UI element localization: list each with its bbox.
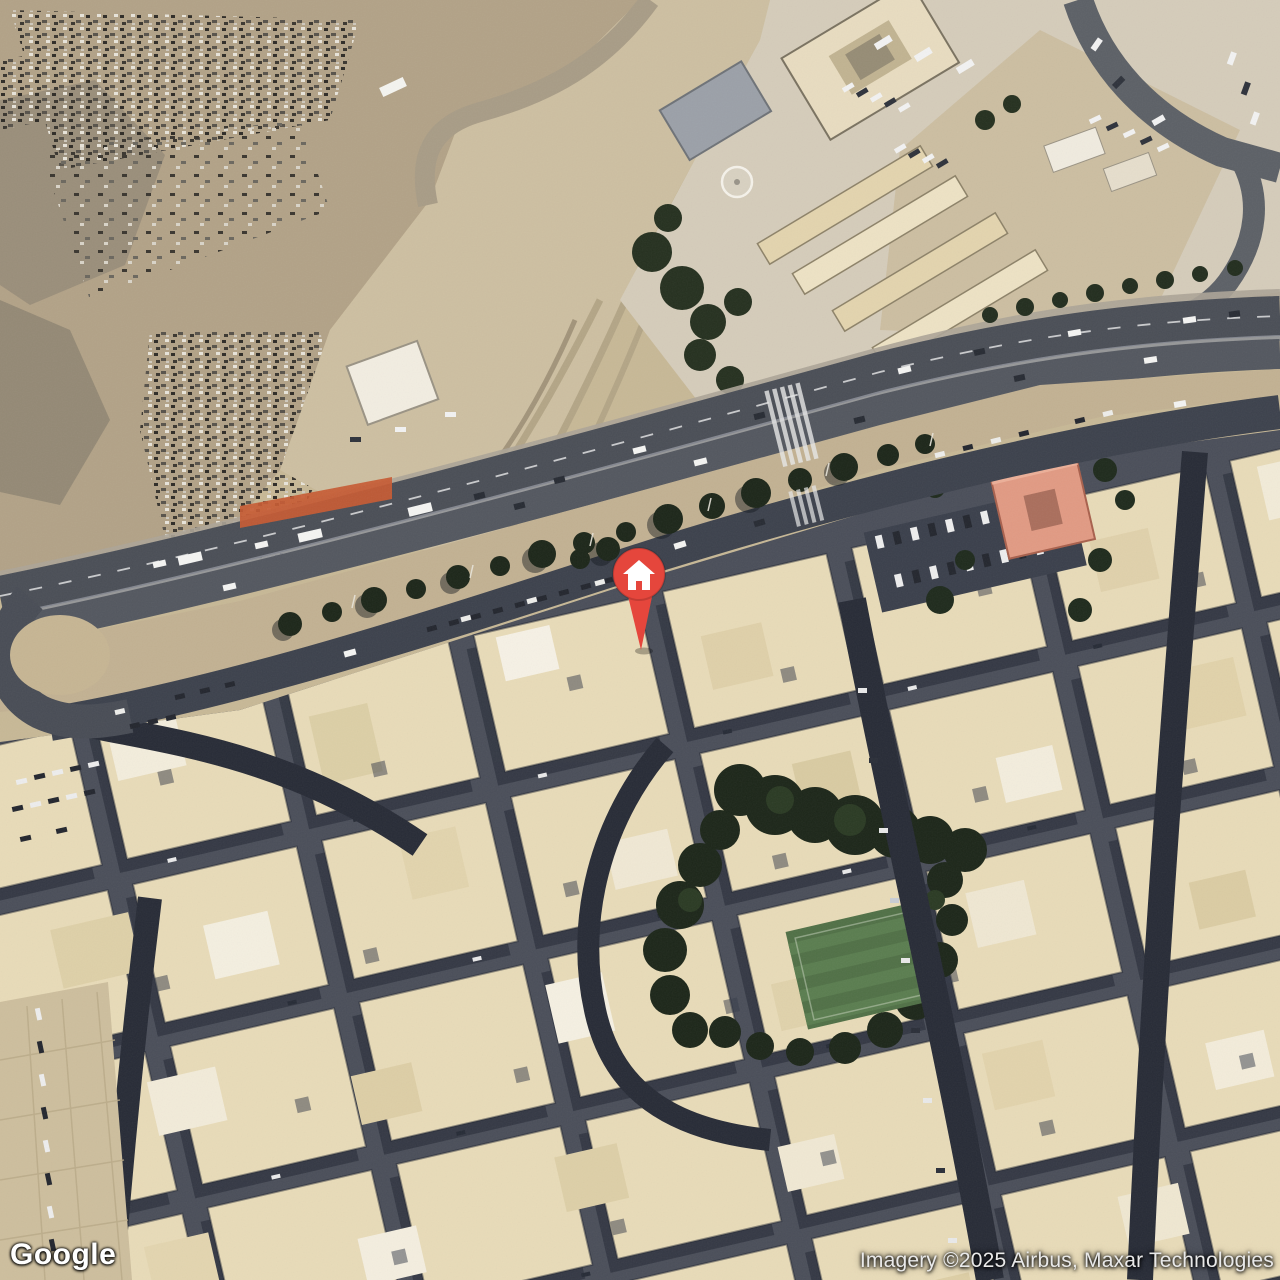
satellite-imagery bbox=[0, 0, 1280, 1280]
imagery-attribution: Imagery ©2025 Airbus, Maxar Technologies bbox=[860, 1249, 1274, 1273]
satellite-map-canvas[interactable]: Google Imagery ©2025 Airbus, Maxar Techn… bbox=[0, 0, 1280, 1280]
google-logo[interactable]: Google bbox=[10, 1238, 116, 1272]
marker-shadow bbox=[635, 648, 653, 655]
